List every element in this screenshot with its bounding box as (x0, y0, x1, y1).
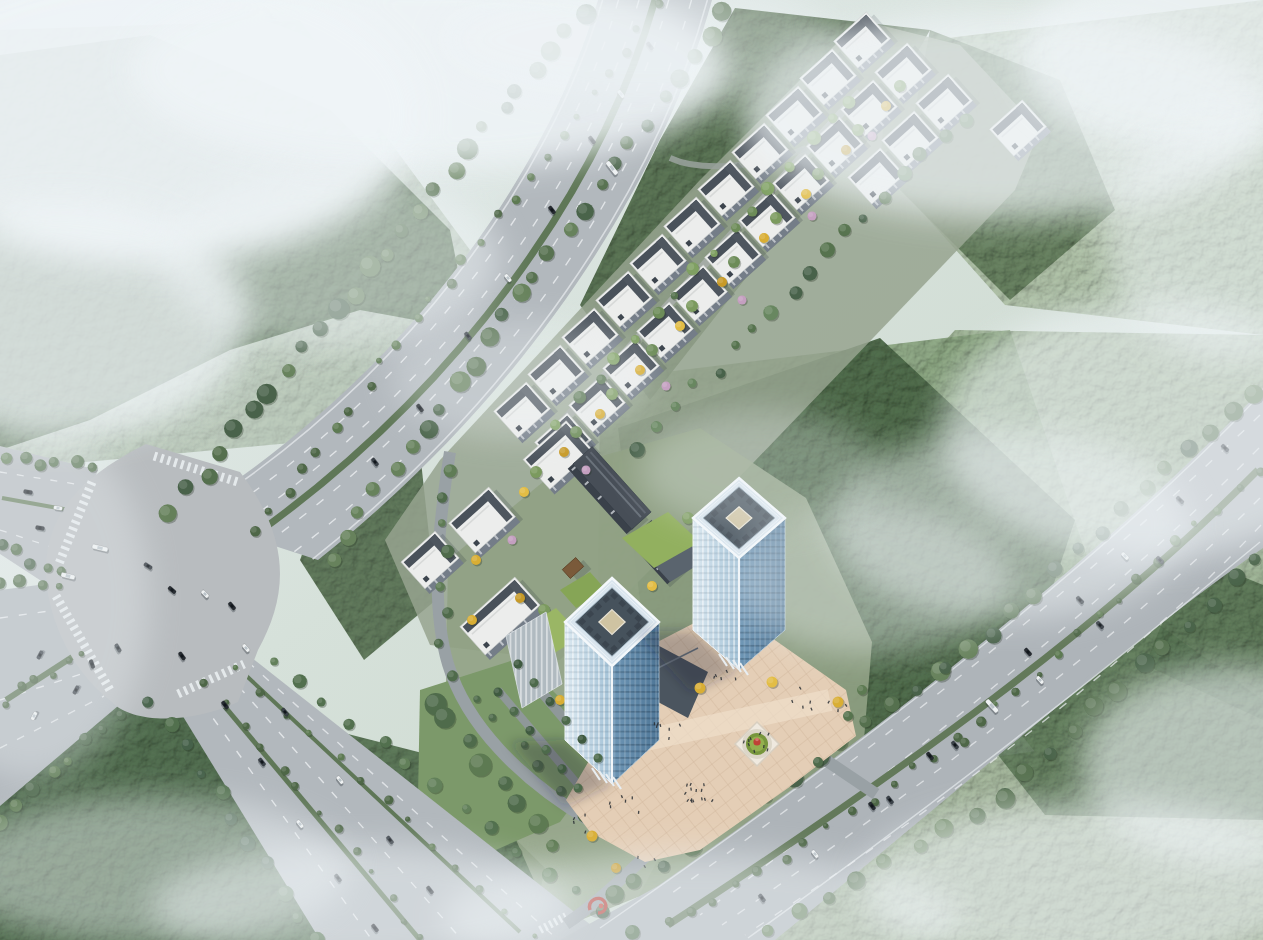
tree-highlight (439, 520, 443, 524)
tree-highlight (687, 263, 694, 270)
tree-highlight (540, 246, 549, 255)
tree-highlight (662, 382, 667, 387)
tree-highlight (468, 616, 474, 622)
tree-highlight (762, 183, 769, 190)
tree-highlight (143, 697, 149, 703)
tree-highlight (509, 796, 519, 806)
tree-highlight (647, 345, 654, 352)
tree-highlight (833, 697, 839, 703)
tree-highlight (821, 243, 829, 251)
tree-highlight (560, 448, 566, 454)
tree-highlight (463, 805, 468, 810)
tree-highlight (1069, 725, 1077, 733)
tree-highlight (671, 402, 676, 407)
tree-highlight (849, 807, 854, 812)
tree-highlight (565, 224, 573, 232)
tree-highlight (358, 777, 362, 781)
tree-highlight (429, 844, 433, 848)
tree-highlight (1185, 622, 1191, 628)
tree-highlight (341, 531, 350, 540)
tree-highlight (748, 325, 753, 330)
tree-highlight (652, 422, 658, 428)
tree-highlight (392, 463, 400, 471)
tree-highlight (1037, 672, 1040, 675)
tree-highlight (368, 383, 373, 388)
tree-highlight (338, 754, 342, 758)
tree-highlight (764, 306, 772, 314)
tree-highlight (1136, 654, 1147, 665)
tree-highlight (1109, 683, 1120, 694)
tree-highlight (333, 423, 339, 429)
tree-highlight (448, 671, 454, 677)
tree-highlight (858, 686, 864, 692)
tree-highlight (160, 506, 170, 516)
tree-highlight (1074, 630, 1078, 634)
tree-highlight (514, 660, 519, 665)
tree-highlight (203, 470, 212, 479)
tree-highlight (520, 488, 526, 494)
tree-highlight (344, 408, 349, 413)
tree-highlight (844, 712, 850, 718)
tree-highlight (528, 174, 532, 178)
pedestrian (669, 728, 670, 731)
tree-highlight (716, 369, 721, 374)
tree-highlight (671, 293, 675, 297)
tree-highlight (587, 831, 593, 837)
tree-highlight (281, 767, 286, 772)
tree-highlight (257, 744, 261, 748)
tree-highlight (578, 204, 588, 214)
fog-patch (640, 410, 880, 530)
tree-highlight (179, 480, 188, 489)
tree-highlight (442, 546, 449, 553)
tree-highlight (767, 677, 773, 683)
tree-highlight (558, 765, 563, 770)
tree-highlight (732, 341, 737, 346)
tree-highlight (578, 735, 583, 740)
tree-highlight (286, 489, 292, 495)
pedestrian (654, 722, 655, 725)
tree-highlight (530, 679, 535, 684)
tree-highlight (648, 582, 654, 588)
tree-highlight (1250, 554, 1256, 560)
tree-highlight (940, 663, 947, 670)
tree-highlight (799, 839, 804, 844)
aerial-rendering (0, 0, 1263, 940)
tree-highlight (823, 823, 826, 826)
tree-highlight (428, 779, 437, 788)
tree-highlight (311, 448, 316, 453)
tree-highlight (233, 665, 236, 668)
tree-highlight (10, 800, 17, 807)
tree-highlight (748, 207, 754, 213)
tree-highlight (474, 696, 478, 700)
tree-highlight (510, 707, 515, 712)
tree-highlight (352, 507, 359, 514)
tree-highlight (494, 688, 499, 693)
pedestrian (610, 805, 611, 808)
tree-highlight (1208, 599, 1216, 607)
tree-highlight (247, 402, 257, 412)
tree-highlight (546, 698, 551, 703)
tree-highlight (256, 689, 261, 694)
tree-highlight (512, 196, 517, 201)
tree-highlight (436, 583, 441, 588)
tree-highlight (166, 718, 174, 726)
tree-highlight (385, 796, 390, 801)
tree-highlight (182, 740, 188, 746)
tree-highlight (954, 733, 959, 738)
tree-highlight (738, 296, 743, 301)
tree-highlight (562, 717, 567, 722)
tree-highlight (531, 467, 538, 474)
tree-highlight (306, 730, 309, 733)
tree-highlight (760, 234, 766, 240)
pedestrian (632, 796, 633, 799)
tree-highlight (913, 686, 919, 692)
tree-highlight (632, 336, 637, 341)
tree-highlight (987, 629, 996, 638)
tree-highlight (485, 822, 493, 830)
tree-highlight (377, 358, 380, 361)
tree-highlight (654, 308, 661, 315)
tree-highlight (400, 759, 406, 765)
tree-highlight (1055, 651, 1060, 656)
tree-highlight (960, 641, 971, 652)
tree-highlight (839, 225, 846, 232)
tree-highlight (872, 799, 876, 803)
tree-highlight (407, 441, 415, 449)
fog-patch (160, 170, 500, 350)
tree-highlight (631, 443, 640, 452)
tree-highlight (1045, 748, 1052, 755)
tree-highlight (499, 777, 507, 785)
tree-highlight (1017, 765, 1027, 775)
tree-highlight (547, 841, 554, 848)
tree-highlight (200, 679, 205, 684)
tree-highlight (512, 848, 517, 853)
tree-highlight (802, 190, 808, 196)
tree-highlight (367, 483, 375, 491)
tree-highlight (405, 817, 408, 820)
tree-highlight (1155, 641, 1164, 650)
tree-highlight (542, 746, 547, 751)
tree-highlight (496, 309, 503, 316)
tree-highlight (885, 697, 894, 706)
tree-highlight (687, 301, 694, 308)
tree-highlight (436, 709, 448, 721)
tree-highlight (859, 215, 864, 220)
tree-highlight (438, 493, 444, 499)
tree-highlight (435, 639, 440, 644)
tree-highlight (225, 421, 235, 431)
tree-highlight (688, 379, 693, 384)
tree-highlight (790, 287, 797, 294)
tree-highlight (718, 278, 724, 284)
tree-highlight (344, 720, 350, 726)
tree-highlight (860, 716, 867, 723)
tree-highlight (556, 696, 562, 702)
tree-highlight (489, 714, 493, 718)
tree-highlight (732, 224, 737, 229)
tree-highlight (243, 723, 247, 727)
tree-highlight (892, 781, 896, 785)
tree-highlight (271, 658, 275, 662)
tree-highlight (526, 727, 531, 732)
tree-highlight (292, 783, 296, 787)
tree-highlight (574, 784, 579, 789)
tree-highlight (997, 790, 1008, 801)
pedestrian (584, 814, 585, 817)
tree-highlight (495, 210, 499, 214)
tree-highlight (814, 758, 820, 764)
tree-highlight (516, 594, 522, 600)
tree-highlight (1012, 688, 1016, 692)
tree-highlight (335, 825, 340, 830)
tree-highlight (217, 786, 225, 794)
tree-highlight (464, 735, 472, 743)
tree-highlight (426, 695, 438, 707)
tree-highlight (598, 180, 604, 186)
tree-highlight (26, 783, 34, 791)
tree-highlight (251, 527, 257, 533)
tree-highlight (508, 536, 513, 541)
tree-highlight (539, 605, 546, 612)
tree-highlight (258, 385, 269, 396)
tree-highlight (594, 754, 599, 759)
tree-highlight (676, 322, 682, 328)
tree-highlight (527, 273, 533, 279)
tree-highlight (909, 763, 913, 767)
tree-highlight (729, 257, 736, 264)
tree-highlight (530, 815, 541, 826)
aerial-rendering-stage (0, 0, 1263, 940)
pedestrian (748, 739, 749, 742)
tree-highlight (961, 738, 966, 743)
tree-highlight (198, 770, 202, 774)
tree-highlight (695, 683, 701, 689)
tree-highlight (317, 698, 322, 703)
tree-highlight (1229, 570, 1239, 580)
tree-highlight (514, 285, 524, 295)
tree-highlight (317, 811, 320, 814)
tree-highlight (298, 464, 304, 470)
tree-highlight (804, 267, 812, 275)
fountain-sculpture-top (755, 738, 759, 742)
tree-highlight (294, 675, 302, 683)
tree-highlight (1085, 698, 1096, 709)
tree-highlight (443, 608, 449, 614)
tree-highlight (808, 212, 813, 217)
tree-highlight (582, 466, 587, 471)
tree-highlight (445, 465, 452, 472)
tree-highlight (472, 556, 478, 562)
fog-patch (390, 320, 650, 440)
tree-highlight (381, 737, 388, 744)
tree-highlight (977, 717, 983, 723)
tree-highlight (1097, 611, 1100, 614)
tree-highlight (213, 447, 221, 455)
tree-highlight (283, 365, 290, 372)
tree-highlight (471, 755, 484, 768)
tree-highlight (711, 250, 715, 254)
tree-highlight (265, 508, 269, 512)
tree-highlight (771, 213, 778, 220)
tree-highlight (328, 554, 336, 562)
